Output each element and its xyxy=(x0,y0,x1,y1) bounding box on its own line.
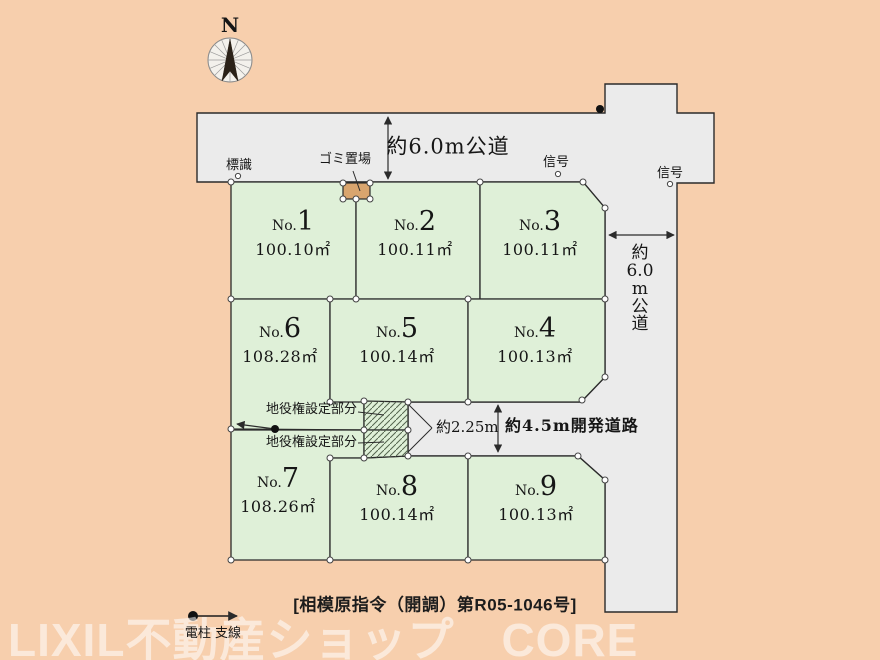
dev-road-label: 約4.5m開発道路 xyxy=(505,417,639,435)
lot-number: 3 xyxy=(544,206,561,237)
signal-label-2: 信号 xyxy=(657,167,683,181)
lot-number: 5 xyxy=(401,313,418,344)
easement-label-2: 地役権設定部分 xyxy=(266,436,357,450)
entrance-width-label: 約2.25m xyxy=(436,419,499,436)
lot-number: 7 xyxy=(282,463,299,494)
lot-number-prefix: No. xyxy=(394,218,419,234)
lot-area: 100.14㎡ xyxy=(359,501,435,525)
lot-area: 108.28㎡ xyxy=(242,343,318,367)
lot-number: 9 xyxy=(540,471,557,502)
lot-number: 6 xyxy=(284,313,301,344)
garbage-label: ゴミ置場 xyxy=(319,153,371,167)
easement-hatch-lower-pattern xyxy=(364,430,408,458)
utility-pole-dot xyxy=(596,105,604,113)
easement-line-dot xyxy=(271,425,279,433)
lot-label-2: No.2 100.11㎡ xyxy=(377,210,453,260)
lot-number-prefix: No. xyxy=(376,325,401,341)
easement-label-1: 地役権設定部分 xyxy=(266,403,357,417)
lot-area: 100.13㎡ xyxy=(498,501,574,525)
lot-number: 1 xyxy=(297,206,314,237)
lot-label-3: No.3 100.11㎡ xyxy=(502,210,578,260)
lot-area: 100.10㎡ xyxy=(255,236,331,260)
compass-north-label: N xyxy=(221,14,239,36)
right-road-label: 約 6.0 m 公 道 xyxy=(626,245,653,334)
legend-label: 電柱 支線 xyxy=(185,627,241,641)
lot-label-5: No.5 100.14㎡ xyxy=(359,317,435,367)
lot-number-prefix: No. xyxy=(515,483,540,499)
lot-number: 2 xyxy=(419,206,436,237)
lot-area: 108.26㎡ xyxy=(240,493,316,517)
right-road-label-char: m xyxy=(626,281,653,299)
compass-rose xyxy=(208,38,252,82)
lot-area: 100.14㎡ xyxy=(359,343,435,367)
lot-number-prefix: No. xyxy=(376,483,401,499)
site-plan: LIXIL不動産ショップ CORE N 約6.0m公道 約 6.0 m 公 道 … xyxy=(0,0,880,660)
lot-area: 100.11㎡ xyxy=(502,236,578,260)
lot-area: 100.11㎡ xyxy=(377,236,453,260)
lot-number: 8 xyxy=(401,471,418,502)
lot-number-prefix: No. xyxy=(514,325,539,341)
right-road-label-char: 6.0 xyxy=(626,263,653,281)
lot-label-9: No.9 100.13㎡ xyxy=(498,475,574,525)
lot-area: 100.13㎡ xyxy=(497,343,573,367)
top-road-label: 約6.0m公道 xyxy=(386,135,509,158)
easement-hatch-upper-pattern xyxy=(364,401,408,430)
signal-label-1: 信号 xyxy=(543,156,569,170)
lot-number-prefix: No. xyxy=(259,325,284,341)
lot-label-4: No.4 100.13㎡ xyxy=(497,317,573,367)
site-plan-drawing xyxy=(0,0,880,660)
sign-label: 標識 xyxy=(226,159,252,173)
lot-number-prefix: No. xyxy=(519,218,544,234)
lot-number-prefix: No. xyxy=(257,475,282,491)
lot-number: 4 xyxy=(539,313,556,344)
lot-label-1: No.1 100.10㎡ xyxy=(255,210,331,260)
right-road-label-char: 道 xyxy=(626,316,653,334)
lot-label-7: No.7 108.26㎡ xyxy=(240,467,316,517)
lot-label-8: No.8 100.14㎡ xyxy=(359,475,435,525)
lot-label-6: No.6 108.28㎡ xyxy=(242,317,318,367)
lot-number-prefix: No. xyxy=(272,218,297,234)
approval-number: [相模原指令（開調）第R05-1046号] xyxy=(293,591,577,616)
